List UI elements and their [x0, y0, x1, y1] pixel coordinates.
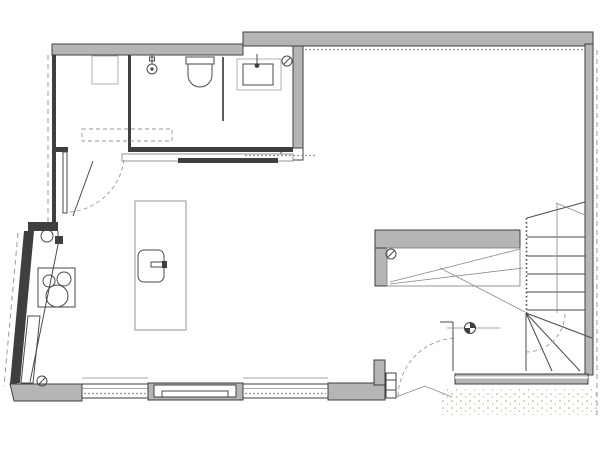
winder-tread-bottom: [526, 313, 580, 371]
left-wall: [52, 55, 56, 225]
winder-staircase: [440, 202, 592, 371]
basin-tap-knob: [255, 63, 260, 68]
bathroom-right-wall: [293, 46, 303, 148]
column: [55, 236, 63, 244]
marker-quadrant: [465, 328, 471, 334]
hidden-appliance-dashed: [82, 129, 172, 141]
kitchen-wall-stub: [28, 222, 58, 231]
counter-wall-stub: [375, 248, 387, 286]
bathroom-bottom-wall-right: [128, 147, 293, 152]
terrace-door-swing-arc: [398, 338, 456, 396]
dining-counter-wall: [375, 230, 525, 312]
island-body: [135, 201, 186, 330]
counter-wall: [375, 230, 520, 248]
toilet-bowl: [188, 64, 212, 87]
window-right: [243, 384, 328, 398]
bathroom-block: [52, 46, 316, 216]
window-left: [82, 384, 148, 398]
top-wall-right: [243, 32, 593, 46]
burner-medium: [57, 272, 71, 286]
top-wall-left: [52, 44, 243, 55]
door-return-stub: [374, 360, 385, 385]
winder-tread-top: [527, 202, 585, 218]
bathroom-bottom-wall-left: [52, 147, 68, 152]
floor-plan-canvas: [0, 0, 600, 450]
drain-symbol: [282, 56, 292, 66]
toilet-cistern: [186, 57, 214, 64]
door-leaf-open: [63, 152, 67, 213]
door-swing-arc: [70, 160, 124, 212]
right-wall: [585, 44, 593, 375]
bottom-wall-pier: [328, 383, 385, 400]
storage-cabinet: [92, 56, 118, 84]
stair-window: [455, 374, 588, 384]
level-marker: [447, 323, 500, 334]
terrace-door-jamb: [386, 373, 396, 398]
diagonal-wall: [10, 231, 34, 384]
bottom-wall-left: [10, 384, 82, 401]
wall-cabinet-row: [178, 158, 278, 163]
counter-sink: [41, 230, 53, 242]
bathroom-partition: [128, 55, 131, 147]
marker-quadrant: [470, 323, 476, 329]
shower-nozzle: [150, 67, 153, 70]
island-faucet-base: [162, 261, 167, 268]
counter-front-edge: [30, 245, 58, 382]
floor-plan-drawing: [0, 0, 600, 450]
kitchen-island: [135, 201, 186, 330]
door-leaf-angled: [73, 161, 93, 216]
burner-large: [46, 285, 68, 307]
terrace-gravel-stipple: [442, 388, 597, 415]
